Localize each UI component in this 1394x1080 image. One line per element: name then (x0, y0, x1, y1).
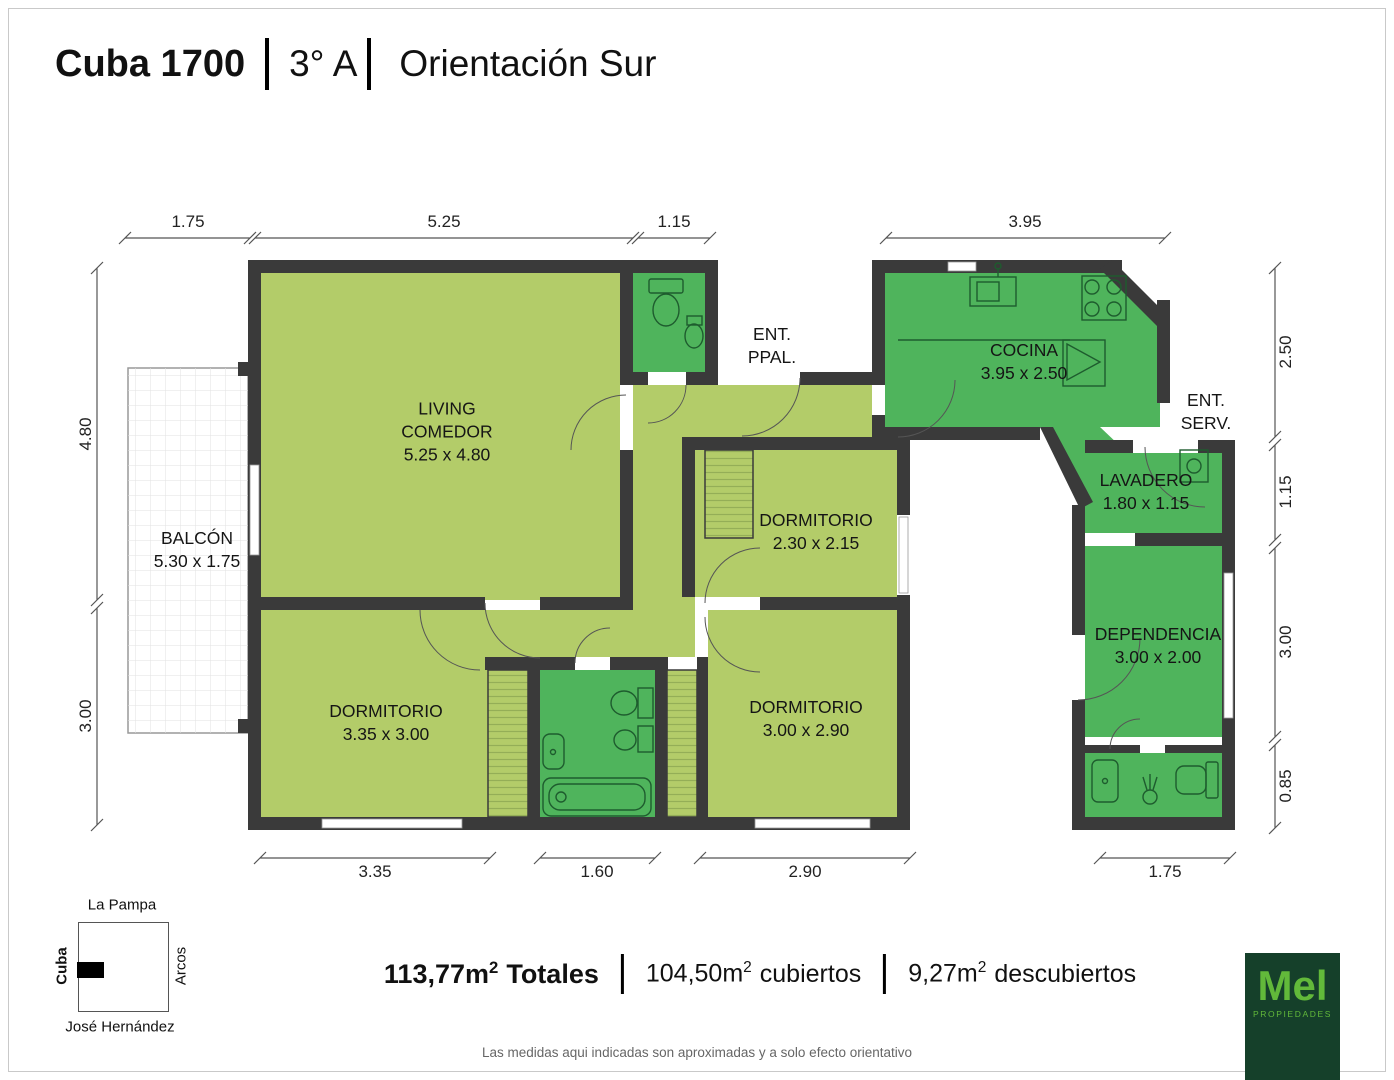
total-sup: 2 (489, 958, 498, 977)
covered-sup: 2 (743, 959, 752, 976)
room-name: DEPENDENCIA (1095, 624, 1221, 644)
total-area: 113,77m2Totales (384, 958, 599, 990)
dim-bottom-1: 1.60 (580, 862, 613, 882)
street-west: Cuba (54, 947, 71, 985)
room-name: LAVADERO (1100, 470, 1193, 490)
room-name: LIVING COMEDOR (401, 398, 492, 441)
dim-left-1: 3.00 (76, 699, 96, 732)
logo-brand: Mel (1257, 965, 1327, 1007)
street-east: Arcos (173, 947, 190, 985)
floorplan-page: Cuba 1700 3° A Orientación Sur (0, 0, 1394, 1080)
dim-top-1: 5.25 (427, 212, 460, 232)
room-size: 3.35 x 3.00 (343, 724, 430, 744)
total-label: Totales (506, 959, 599, 989)
totals-divider (883, 954, 886, 994)
room-name: DORMITORIO (329, 701, 442, 721)
total-value: 113,77m (384, 959, 489, 989)
entry-line: SERV. (1181, 413, 1232, 433)
logo-tagline: PROPIEDADES (1253, 1009, 1332, 1019)
room-size: 3.00 x 2.90 (763, 720, 850, 740)
covered-area: 104,50m2cubiertos (646, 959, 861, 988)
room-label-dormitorio-335: DORMITORIO 3.35 x 3.00 (329, 700, 442, 746)
entry-line: ENT. (753, 324, 791, 344)
room-label-dormitorio-230: DORMITORIO 2.30 x 2.15 (759, 509, 872, 555)
area-totals: 113,77m2Totales 104,50m2cubiertos 9,27m2… (384, 954, 1136, 994)
uncovered-sup: 2 (978, 959, 987, 976)
label-entrada-servicio: ENT. SERV. (1181, 389, 1232, 435)
room-label-living: LIVING COMEDOR 5.25 x 4.80 (388, 397, 506, 466)
room-label-cocina: COCINA 3.95 x 2.50 (981, 339, 1068, 385)
label-entrada-principal: ENT. PPAL. (748, 323, 796, 369)
room-label-dependencia: DEPENDENCIA 3.00 x 2.00 (1095, 623, 1221, 669)
dim-bottom-0: 3.35 (358, 862, 391, 882)
dim-bottom-3: 1.75 (1148, 862, 1181, 882)
dim-top-0: 1.75 (171, 212, 204, 232)
room-label-balcon: BALCÓN 5.30 x 1.75 (154, 527, 241, 573)
entry-line: ENT. (1187, 390, 1225, 410)
dim-top-2: 1.15 (657, 212, 690, 232)
room-size: 3.00 x 2.00 (1115, 647, 1202, 667)
covered-label: cubiertos (760, 960, 861, 988)
dim-right-2: 3.00 (1276, 625, 1296, 658)
dim-right-3: 0.85 (1276, 769, 1296, 802)
room-size: 5.25 x 4.80 (404, 445, 491, 465)
street-north: La Pampa (88, 897, 156, 914)
room-size: 1.80 x 1.15 (1103, 493, 1190, 513)
room-name: DORMITORIO (749, 697, 862, 717)
covered-value: 104,50m (646, 960, 743, 988)
dim-left-0: 4.80 (76, 417, 96, 450)
room-name: BALCÓN (161, 528, 233, 548)
room-size: 3.95 x 2.50 (981, 363, 1068, 383)
building-location-marker (77, 962, 104, 978)
entry-line: PPAL. (748, 347, 796, 367)
dim-right-0: 2.50 (1276, 335, 1296, 368)
room-name: COCINA (990, 340, 1058, 360)
room-label-dormitorio-300: DORMITORIO 3.00 x 2.90 (749, 696, 862, 742)
room-name: DORMITORIO (759, 510, 872, 530)
totals-divider (621, 954, 624, 994)
uncovered-area: 9,27m2descubiertos (908, 959, 1136, 988)
dim-right-1: 1.15 (1276, 475, 1296, 508)
measurements-disclaimer: Las medidas aqui indicadas son aproximad… (482, 1045, 912, 1060)
uncovered-label: descubiertos (994, 960, 1136, 988)
uncovered-value: 9,27m (908, 960, 977, 988)
mel-propiedades-logo: Mel PROPIEDADES (1245, 953, 1340, 1080)
room-size: 5.30 x 1.75 (154, 551, 241, 571)
dim-top-3: 3.95 (1008, 212, 1041, 232)
street-south: José Hernández (65, 1019, 174, 1036)
room-size: 2.30 x 2.15 (773, 533, 860, 553)
room-label-lavadero: LAVADERO 1.80 x 1.15 (1100, 469, 1193, 515)
dim-bottom-2: 2.90 (788, 862, 821, 882)
